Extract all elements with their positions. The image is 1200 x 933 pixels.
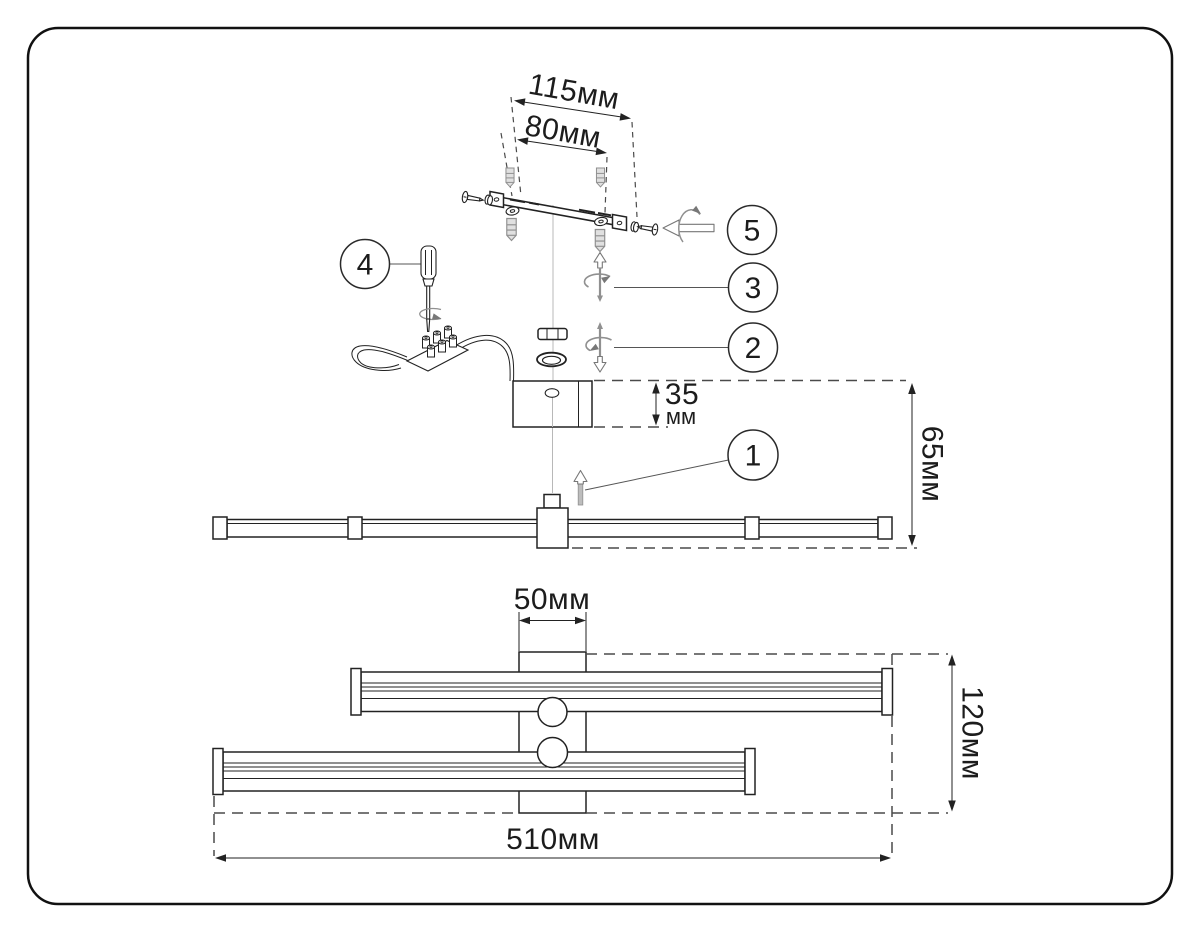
- fixture-side-view: [213, 495, 892, 549]
- dim-35-unit: мм: [666, 404, 696, 429]
- end-cap: [878, 517, 892, 539]
- wall-plug-icon: [595, 230, 604, 252]
- step-balloon-1: 1: [585, 430, 778, 490]
- canopy-box: [513, 381, 592, 427]
- screw-icon-left: [462, 191, 494, 205]
- lamp-bar-lower: [213, 749, 755, 795]
- assembly-diagram: 115мм 80мм: [0, 0, 1200, 933]
- step-balloon-2: 2: [614, 323, 778, 372]
- end-cap: [882, 669, 893, 716]
- dim-canopy-height: 35 мм: [594, 378, 699, 429]
- step-5-number: 5: [744, 215, 761, 248]
- canopy-side: [537, 508, 568, 548]
- dim-total-length: 510мм: [215, 823, 891, 862]
- step-balloon-3: 3: [614, 263, 778, 312]
- dim-80-label: 80мм: [522, 109, 603, 155]
- screw-icon-right: [630, 221, 658, 235]
- swivel-joint-upper: [538, 698, 567, 727]
- decorative-ring: [537, 353, 566, 367]
- step-4-number: 4: [357, 249, 374, 282]
- end-cap: [213, 517, 227, 539]
- insert-up-arrow-icon: [574, 471, 587, 506]
- power-cable-right: [455, 335, 514, 381]
- dim-mount-depth: 65мм: [908, 383, 948, 546]
- wall-plug-icon: [596, 168, 604, 187]
- mount-pin: [544, 495, 560, 509]
- mounting-nut: [538, 329, 567, 340]
- terminal-block: [407, 326, 468, 371]
- dim-plate-width: 50мм: [514, 583, 591, 651]
- assembly-diagram-page: 115мм 80мм: [0, 0, 1200, 933]
- fixture-front-view: [213, 652, 893, 813]
- wall-plug-icon: [507, 219, 516, 241]
- dim-50-label: 50мм: [514, 583, 591, 616]
- step-2-number: 2: [745, 332, 762, 365]
- end-cap: [745, 749, 755, 795]
- pivot-connector: [348, 517, 362, 539]
- step-3-number: 3: [745, 272, 762, 305]
- dim-115-label: 115мм: [526, 68, 622, 116]
- step-balloon-5: 5: [728, 206, 777, 255]
- pivot-connector: [745, 517, 759, 539]
- washer-icon: [484, 195, 493, 206]
- dim-120-label: 120мм: [956, 686, 989, 780]
- vertical-centerline: [553, 205, 554, 493]
- screwdriver-icon: [420, 246, 443, 332]
- lamp-bar-upper: [351, 669, 893, 716]
- step-1-number: 1: [745, 440, 762, 473]
- dim-total-height: 120мм: [948, 655, 988, 812]
- rotation-arrow-icon-lower: [586, 322, 612, 372]
- swivel-joint-lower: [538, 738, 568, 768]
- wall-plug-icon: [506, 168, 514, 187]
- dim-510-label: 510мм: [506, 823, 600, 856]
- rotate-insert-arrow-icon: [663, 206, 714, 242]
- rotation-arrow-icon-upper: [584, 253, 612, 303]
- power-cable-left: [352, 346, 409, 371]
- end-cap: [213, 749, 223, 795]
- step-balloon-4: 4: [341, 240, 421, 289]
- end-cap: [351, 669, 361, 716]
- dim-65-label: 65мм: [916, 426, 949, 503]
